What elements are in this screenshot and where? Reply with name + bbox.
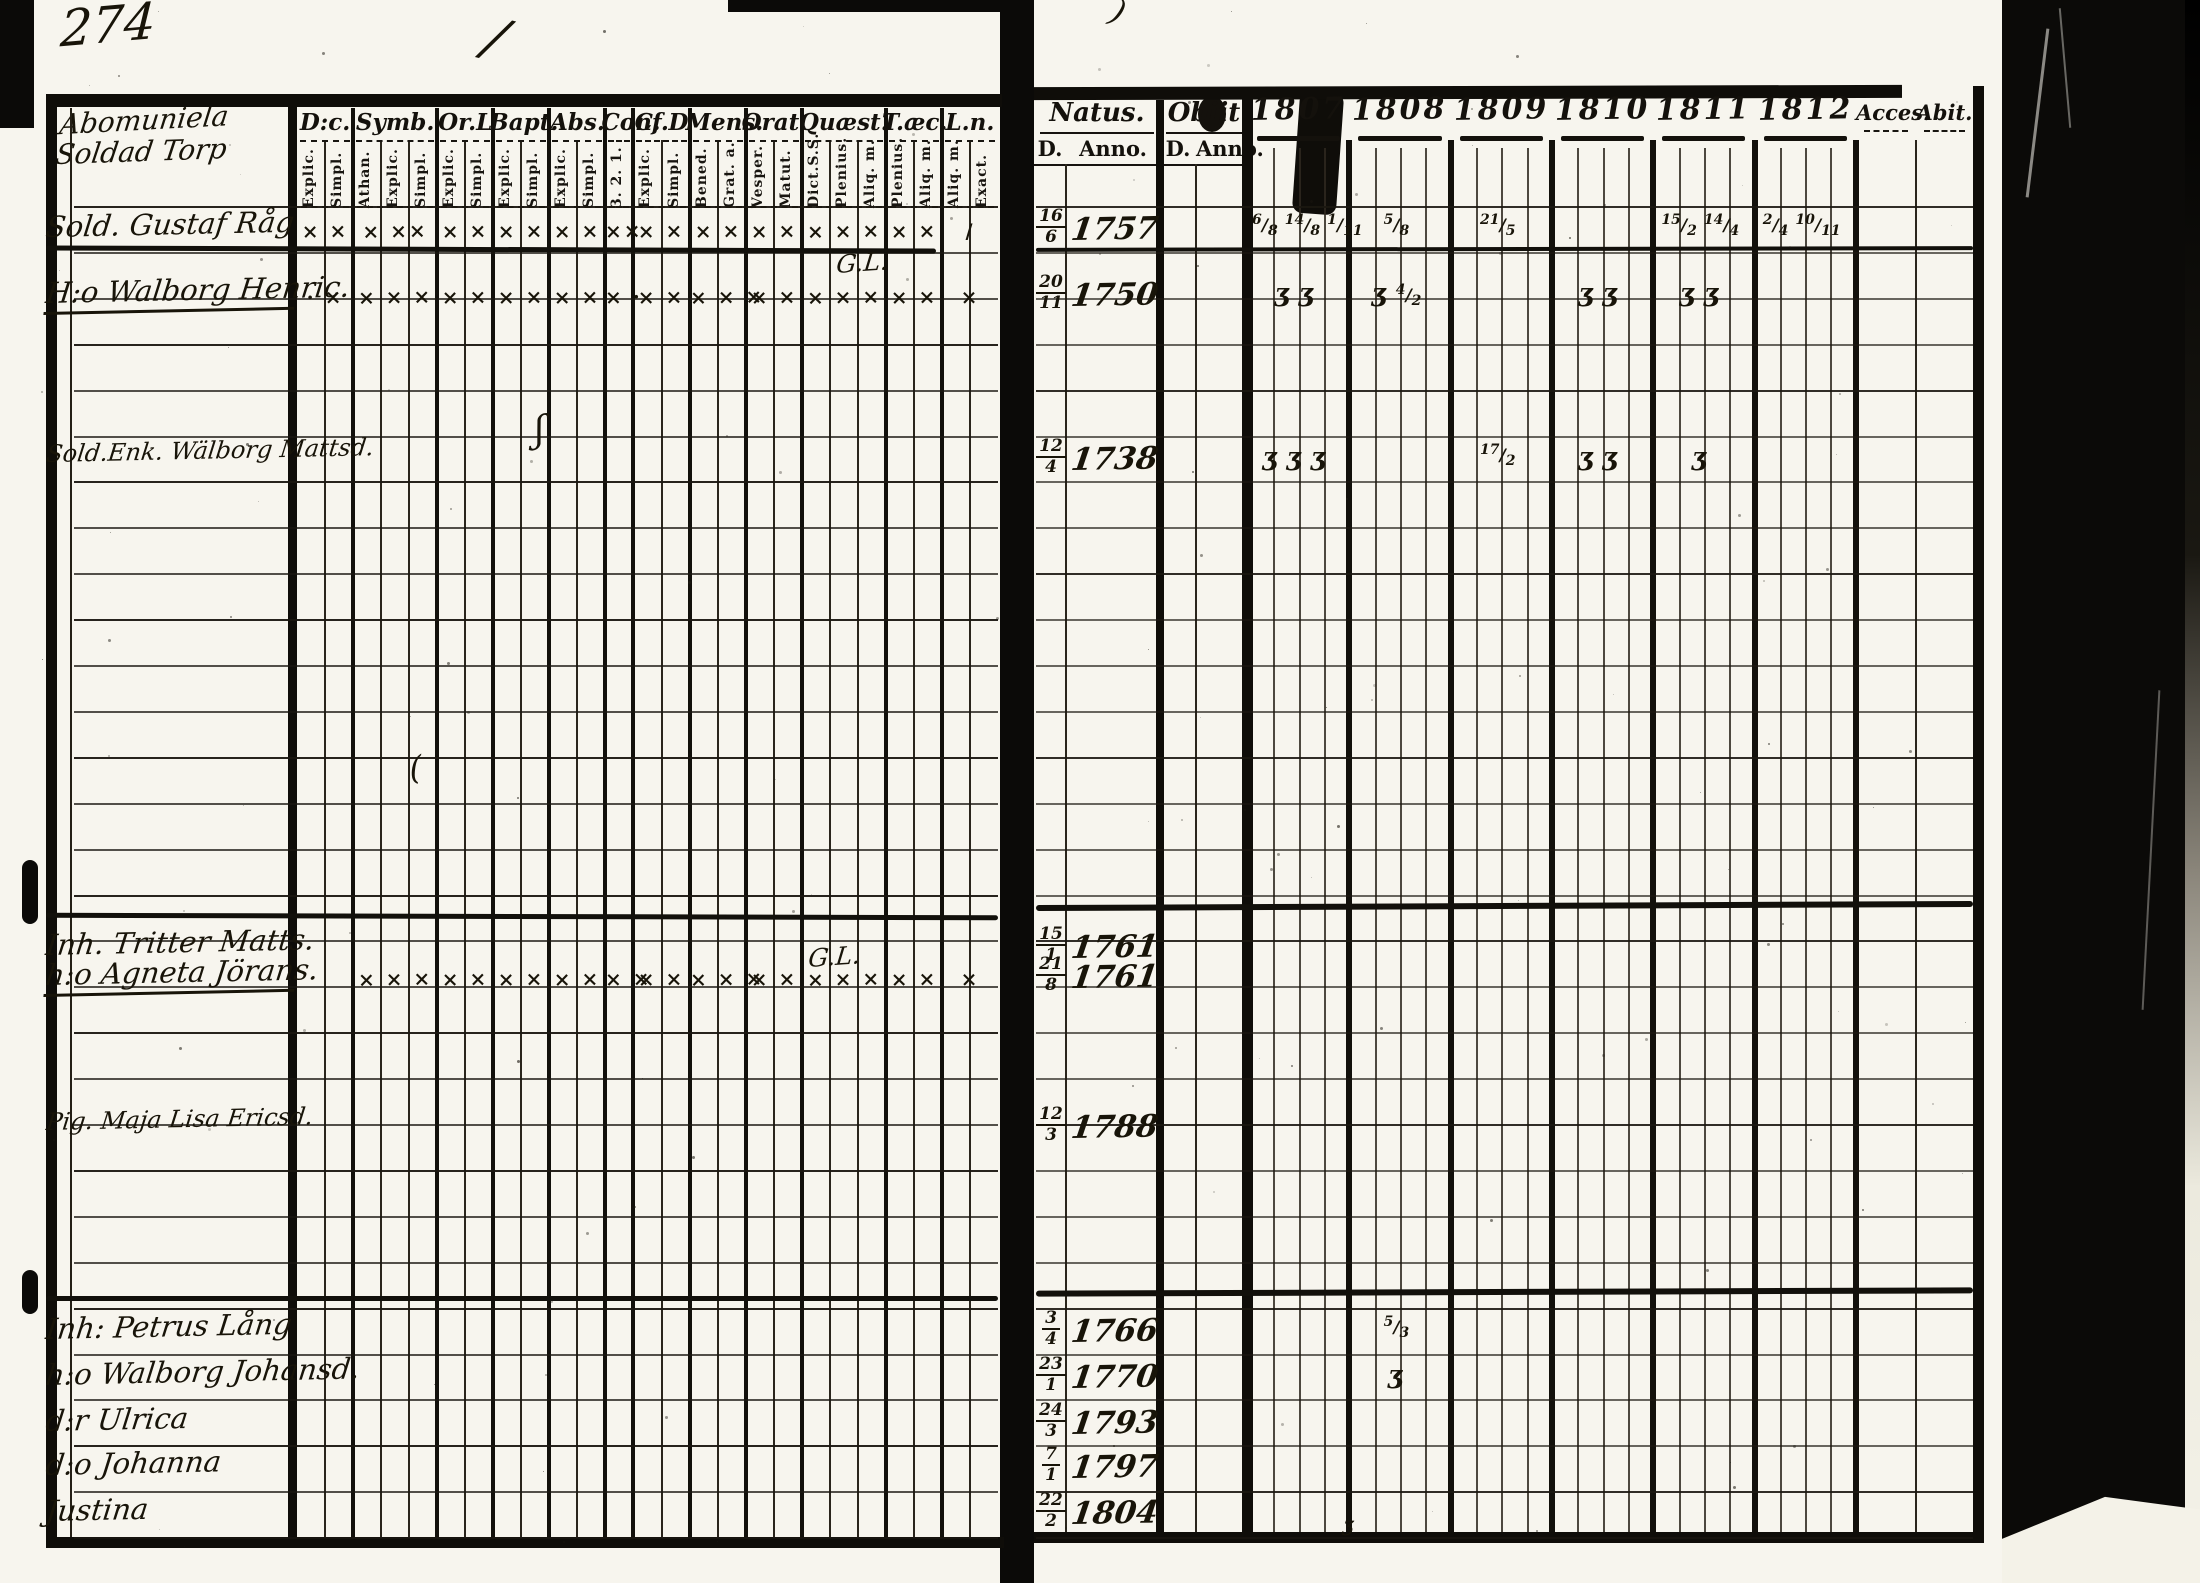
speckle — [1188, 101, 1191, 104]
speckle — [1200, 717, 1201, 718]
speckle — [692, 1156, 695, 1159]
year-header: 1812 — [1754, 91, 1856, 129]
subcolumn-label: Exact. — [974, 146, 996, 208]
speckle — [726, 435, 728, 437]
speckle — [950, 217, 953, 220]
speckle — [1965, 1022, 1966, 1023]
person-name: d:r Ulrica — [44, 1399, 299, 1440]
right-row-line — [1036, 1032, 1973, 1034]
acces-header: Acces. — [1856, 100, 1916, 126]
right-row-line — [1036, 1537, 1973, 1539]
stray-pen-mark: / — [476, 6, 556, 81]
speckle — [1793, 1445, 1796, 1448]
obiit-rule — [1166, 132, 1242, 134]
attendance-marks: × × — [633, 218, 690, 245]
communion-date-marks: ʒʒ — [1556, 278, 1649, 312]
speckle — [1471, 108, 1473, 110]
speckle — [530, 460, 533, 463]
subcolumn-line — [324, 140, 326, 1538]
speckle — [1148, 649, 1149, 650]
left-row-line — [74, 619, 998, 621]
speckle — [906, 203, 908, 205]
speckle — [1932, 1103, 1934, 1105]
speckle — [159, 1529, 160, 1530]
natus-anno-value: 1757 — [1069, 210, 1162, 248]
subcolumn-label: Explic. — [441, 146, 463, 208]
right-row-line — [1036, 1124, 1973, 1126]
speckle — [642, 1078, 643, 1079]
person-name: Justina — [44, 1489, 299, 1530]
person-name: H:o Walborg Henric. — [43, 271, 298, 315]
speckle — [1706, 1269, 1709, 1272]
person-name: Pig. Maja Lisa Ericsd. — [44, 1103, 299, 1144]
subcolumn-line — [661, 140, 663, 1538]
speckle — [665, 1416, 668, 1419]
column-group-rule — [552, 140, 602, 142]
year-group-divider — [1346, 140, 1352, 1532]
speckle — [1536, 1530, 1538, 1532]
year-group-divider — [1752, 140, 1758, 1532]
speckle — [1602, 1054, 1605, 1057]
speckle — [183, 910, 185, 912]
attendance-marks: × × — [549, 284, 606, 311]
subcolumn-line — [913, 140, 915, 1538]
speckle — [1311, 877, 1312, 878]
natus-day-value: 2011 — [1035, 274, 1067, 314]
left-row-line — [74, 1537, 998, 1539]
speckle — [243, 805, 244, 806]
column-group-divider — [435, 108, 439, 1538]
attendance-marks: / — [942, 218, 999, 245]
year-subcolumn-line — [1830, 148, 1832, 1532]
speckle — [634, 1206, 636, 1208]
column-group-divider — [800, 108, 804, 1538]
speckle — [912, 133, 915, 136]
communion-date-marks: 21/5 — [1455, 212, 1548, 246]
right-row-line — [1036, 986, 1973, 988]
speckle — [1613, 694, 1614, 695]
subcolumn-line — [520, 140, 522, 1538]
year-subcolumn-line — [1299, 148, 1301, 1532]
edge-blob-2 — [22, 1270, 38, 1314]
natus-header: Natus. — [1034, 98, 1160, 128]
speckle — [1490, 1219, 1493, 1222]
communion-date-marks: ʒʒ — [1556, 442, 1649, 476]
column-group-rule — [356, 140, 434, 142]
right-row-line — [1036, 1445, 1973, 1447]
attendance-marks: × × — [886, 284, 943, 311]
column-group-divider — [744, 108, 748, 1538]
speckle — [550, 1300, 553, 1303]
year-subcolumn-line — [1577, 148, 1579, 1532]
speckle — [208, 1128, 211, 1131]
abit-rule — [1924, 130, 1965, 132]
subcolumn-label: Grat. a. — [722, 146, 744, 208]
right-row-line — [1036, 527, 1973, 529]
speckle — [1472, 145, 1473, 146]
year-subcolumn-line — [1704, 148, 1706, 1532]
speckle — [42, 659, 43, 660]
subcolumn-label: Simpl. — [469, 146, 491, 208]
subcolumn-label: Dict.S.S. — [806, 146, 828, 208]
subcolumn-label: Simpl. — [666, 146, 688, 208]
speckle — [829, 73, 830, 74]
speckle — [1213, 1191, 1215, 1193]
subcolumn-line — [773, 140, 775, 1538]
speckle — [1516, 55, 1519, 58]
edge-blob-1 — [22, 860, 38, 924]
speckle — [1259, 1058, 1260, 1059]
left-row-line — [74, 1170, 998, 1172]
stray-pen-mark: ) — [1103, 0, 1177, 49]
stray-pen-mark: ʒ — [1341, 1512, 1404, 1542]
speckle — [118, 75, 120, 77]
communion-date-marks: 17/2 — [1455, 442, 1548, 476]
communion-date-marks: 2/410/11 — [1759, 212, 1852, 246]
subcolumn-label: 3. 2. 1. — [609, 146, 631, 208]
left-row-line — [74, 849, 998, 851]
subcolumn-line — [576, 140, 578, 1538]
right-row-line — [1036, 849, 1973, 851]
margin-note: G.L. — [835, 245, 909, 280]
communion-date-marks: ʒʒ — [1657, 278, 1750, 312]
column-group-divider — [547, 108, 551, 1538]
column-group-label: Mens. — [686, 108, 750, 138]
speckle — [1826, 568, 1829, 571]
column-group-divider — [631, 108, 635, 1538]
communion-date-marks: ʒ4/2 — [1353, 278, 1446, 312]
speckle — [1962, 1173, 1963, 1174]
year-header: 1811 — [1653, 91, 1755, 129]
subcolumn-label: Simpl. — [413, 146, 435, 208]
right-row-line — [1036, 390, 1973, 392]
right-row-line — [1036, 1078, 1973, 1080]
speckle — [1373, 684, 1376, 687]
speckle — [260, 258, 263, 261]
year-rule — [1662, 136, 1745, 141]
attendance-marks: × × — [437, 966, 494, 993]
speckle — [1380, 1027, 1383, 1030]
attendance-marks: ×× — [605, 218, 633, 244]
speckle — [322, 52, 325, 55]
gutter-shadow — [1000, 0, 1034, 1583]
left-table-top-border — [46, 94, 1002, 107]
left-heading-line2: Soldad Torp — [53, 132, 229, 171]
speckle — [230, 616, 232, 618]
speckle — [179, 1047, 182, 1050]
right-row-line — [1036, 573, 1973, 575]
speckle — [1956, 101, 1958, 103]
right-table-right-border — [1973, 86, 1984, 1538]
speckle — [1604, 204, 1606, 206]
subcolumn-line — [857, 140, 859, 1538]
column-group-rule — [496, 140, 546, 142]
right-row-line — [1036, 1170, 1973, 1172]
year-group-divider — [1448, 140, 1454, 1532]
attendance-marks: × × — [633, 284, 690, 311]
speckle — [228, 347, 229, 348]
subcolumn-label: Simpl. — [581, 146, 603, 208]
year-rule — [1561, 136, 1644, 141]
speckle — [1519, 675, 1521, 677]
speckle — [1645, 1038, 1648, 1041]
subcolumn-line — [829, 140, 831, 1538]
left-row-line — [74, 1032, 998, 1034]
person-name: d:o Johanna — [44, 1443, 299, 1484]
subcolumn-line — [408, 140, 410, 1538]
column-group-rule — [440, 140, 490, 142]
speckle — [906, 278, 909, 281]
right-row-line — [1036, 1491, 1973, 1493]
year-rule — [1257, 136, 1340, 141]
attendance-marks: × × — [745, 284, 802, 311]
speckle — [1098, 68, 1101, 71]
right-row-line — [1036, 940, 1973, 942]
left-row-line — [74, 665, 998, 667]
person-name: h:o Agneta Jörans. — [43, 953, 298, 997]
natus-anno-value: 1788 — [1069, 1108, 1162, 1146]
left-row-line — [74, 481, 998, 483]
speckle — [1742, 185, 1743, 186]
speckle — [1133, 179, 1135, 181]
speckle — [1270, 868, 1273, 871]
year-subcolumn-line — [1527, 148, 1529, 1532]
speckle — [447, 662, 450, 665]
left-row-line — [74, 390, 998, 392]
subcolumn-line — [380, 140, 382, 1538]
speckle — [1197, 265, 1199, 267]
speckle — [1277, 853, 1280, 856]
right-row-line — [1036, 1354, 1973, 1356]
obiit-header: Obiit — [1160, 98, 1248, 128]
subcolumn-label: Plenius. — [890, 146, 912, 208]
acces-rule — [1864, 130, 1908, 132]
scan-edge-fade — [2185, 0, 2200, 1583]
left-row-line — [74, 573, 998, 575]
speckle — [89, 85, 90, 86]
natus-day-value: 166 — [1035, 208, 1067, 248]
attendance-marks: × × × — [801, 283, 886, 310]
natus-day-value: 123 — [1035, 1106, 1067, 1146]
person-name: Sold.Enk. Wälborg Mattsd. — [44, 435, 299, 476]
natus-anno-value: 1797 — [1069, 1448, 1162, 1486]
speckle — [1838, 1011, 1839, 1012]
column-group-rule — [608, 140, 630, 142]
right-row-line — [1036, 895, 1973, 897]
right-row-line — [1036, 298, 1973, 300]
person-name: Sold. Gustaf Råg — [44, 205, 299, 246]
speckle — [1281, 1423, 1284, 1426]
column-group-divider — [940, 108, 944, 1538]
attendance-marks: · × — [297, 284, 354, 311]
year-rule — [1358, 136, 1441, 141]
attendance-marks: × × — [493, 218, 550, 245]
year-subcolumn-line — [1324, 148, 1326, 1532]
speckle — [1518, 900, 1519, 901]
year-rule — [1460, 136, 1543, 141]
scanned-ledger-spread: 274 Abomuniela Soldad Torp D:c.Explic.Si… — [0, 0, 2200, 1583]
abit-divider — [1915, 140, 1917, 1532]
column-group-label: Or.L — [433, 108, 497, 138]
scan-corner-topleft — [0, 0, 34, 128]
subcolumn-label: Explic. — [553, 146, 575, 208]
speckle — [410, 716, 411, 717]
speckle — [543, 1471, 544, 1472]
speckle — [1348, 1467, 1349, 1468]
right-row-line — [1036, 803, 1973, 805]
year-rule — [1764, 136, 1847, 141]
speckle — [1432, 1511, 1433, 1512]
left-row-line — [74, 895, 998, 897]
attendance-marks: × × — [886, 966, 943, 993]
attendance-marks: × × — [297, 218, 354, 245]
natus-day-value: 222 — [1035, 1492, 1067, 1532]
person-name: Inh: Petrus Lång — [44, 1307, 299, 1348]
subcolumn-line — [464, 140, 466, 1538]
year-subcolumn-line — [1273, 148, 1275, 1532]
speckle — [434, 1384, 435, 1385]
attendance-marks: × × — [437, 218, 494, 245]
year-header: 1810 — [1552, 91, 1654, 129]
speckle — [1337, 825, 1340, 828]
subcolumn-label: Aliq. m. — [918, 146, 940, 208]
attendance-marks: × × — [549, 218, 606, 245]
speckle — [1700, 792, 1701, 793]
speckle — [1148, 821, 1149, 822]
obiit-anno-label: Anno. — [1196, 136, 1248, 162]
column-group-rule — [749, 140, 799, 142]
communion-date-marks: 6/814/81/11 — [1252, 212, 1345, 246]
right-row-line — [1036, 206, 1973, 208]
natus-anno-value: 1793 — [1069, 1404, 1162, 1442]
attendance-marks: × × — [549, 966, 606, 993]
left-row-line — [74, 344, 998, 346]
attendance-marks: × × — [437, 284, 494, 311]
speckle — [803, 26, 804, 27]
attendance-marks: × — [942, 284, 999, 311]
year-subcolumn-line — [1628, 148, 1630, 1532]
subcolumn-line — [717, 140, 719, 1538]
natus-anno-label: Anno. — [1066, 136, 1160, 162]
communion-date-marks: 5/8 — [1353, 212, 1446, 246]
attendance-marks: × · — [605, 284, 633, 310]
acces-divider — [1853, 140, 1859, 1532]
stray-pen-mark: ʃ — [534, 402, 595, 457]
speckle — [1733, 1486, 1736, 1489]
natus-anno-value: 1766 — [1069, 1312, 1162, 1350]
subcolumn-label: Plenius. — [834, 146, 856, 208]
speckle — [1873, 807, 1874, 808]
communion-date-marks: 15/214/4 — [1657, 212, 1750, 246]
right-row-line — [1036, 1216, 1973, 1218]
speckle — [1951, 225, 1952, 226]
attendance-marks: × × — [605, 966, 633, 992]
speckle — [779, 471, 782, 474]
speckle — [811, 894, 812, 895]
speckle — [1738, 514, 1741, 517]
column-group-label: L.n. — [938, 108, 1002, 138]
right-row-line — [1036, 1308, 1973, 1310]
stray-pen-mark: ( — [408, 740, 470, 793]
speckle — [1810, 1139, 1812, 1141]
column-group-label: Abs. — [545, 108, 609, 138]
year-subcolumn-line — [1780, 148, 1782, 1532]
attendance-marks: × ×× — [353, 217, 438, 244]
column-group-divider — [603, 108, 607, 1538]
column-group-divider — [351, 108, 355, 1538]
right-row-line — [1036, 481, 1973, 483]
speckle — [59, 270, 60, 271]
speckle — [53, 1139, 55, 1141]
year-group-divider — [1650, 140, 1656, 1532]
speckle — [258, 501, 259, 502]
speckle — [110, 532, 111, 533]
natus-day-value: 71 — [1035, 1446, 1067, 1486]
subcolumn-label: Explic. — [301, 146, 323, 208]
speckle — [1767, 943, 1770, 946]
right-row-line — [1036, 619, 1973, 621]
speckle — [1569, 237, 1571, 239]
speckle — [1763, 580, 1765, 582]
speckle — [1099, 253, 1101, 255]
speckle — [1175, 1047, 1177, 1049]
right-row-line — [1036, 436, 1973, 438]
column-group-rule — [300, 140, 350, 142]
speckle — [388, 389, 390, 391]
speckle — [1192, 471, 1194, 473]
subcolumn-label: Vesper. — [750, 146, 772, 208]
year-subcolumn-line — [1679, 148, 1681, 1532]
communion-date-marks: 5/3 — [1353, 1314, 1446, 1348]
speckle — [240, 174, 241, 175]
speckle — [1371, 699, 1373, 701]
column-group-divider — [491, 108, 495, 1538]
scan-edge-right — [2002, 0, 2200, 1583]
column-group-divider — [884, 108, 888, 1538]
abit-header: Abit. — [1916, 100, 1973, 126]
subcolumn-label: Simpl. — [329, 146, 351, 208]
speckle — [996, 617, 999, 620]
communion-date-marks: ʒ — [1657, 442, 1750, 476]
natus-day-value: 231 — [1035, 1356, 1067, 1396]
attendance-marks: × × × — [801, 217, 886, 244]
right-row-line — [1036, 344, 1973, 346]
speckle — [158, 11, 159, 12]
right-row-line — [1036, 757, 1973, 759]
column-group-divider — [688, 108, 692, 1538]
speckle — [517, 797, 519, 799]
attendance-marks: × × × — [353, 283, 438, 310]
speckle — [775, 779, 776, 780]
attendance-marks: × × — [886, 218, 943, 245]
speckle — [1836, 454, 1837, 455]
right-row-line — [1036, 252, 1973, 254]
right-row-line — [1036, 1262, 1973, 1264]
left-row-line — [74, 757, 998, 759]
left-row-line — [74, 711, 998, 713]
natus-day-value: 124 — [1035, 438, 1067, 478]
right-row-line — [1036, 1399, 1973, 1401]
speckle — [354, 350, 355, 351]
communion-date-marks: ʒʒʒ — [1252, 442, 1345, 476]
speckle — [576, 897, 578, 899]
speckle — [1355, 193, 1358, 196]
speckle — [603, 30, 606, 33]
subcolumn-line — [969, 140, 971, 1538]
attendance-marks: × × — [493, 966, 550, 993]
speckle — [184, 1546, 185, 1547]
column-group-label: Symb. — [349, 108, 441, 138]
